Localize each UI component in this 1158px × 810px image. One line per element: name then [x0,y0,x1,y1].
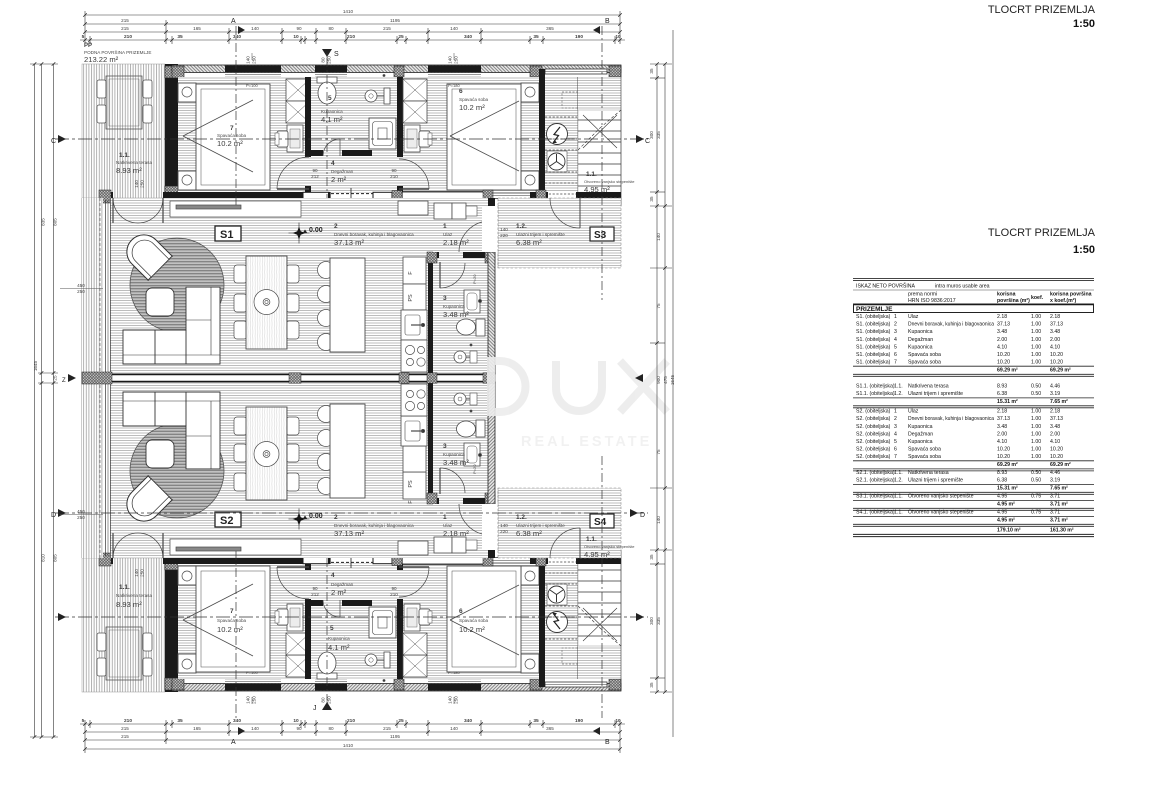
svg-text:10.20: 10.20 [1050,447,1063,453]
svg-text:Kupaonica: Kupaonica [908,439,933,445]
svg-text:S2. (obiteljska): S2. (obiteljska) [856,431,891,437]
svg-text:C: C [645,138,650,145]
svg-text:1.00: 1.00 [1031,416,1041,422]
svg-text:37.13 m²: 37.13 m² [334,238,364,247]
svg-text:140: 140 [134,180,139,188]
svg-text:1.00: 1.00 [1031,439,1041,445]
svg-text:1: 1 [894,314,897,320]
svg-text:1.00: 1.00 [1031,431,1041,437]
svg-text:35: 35 [649,554,654,560]
svg-text:140: 140 [246,696,251,704]
svg-text:površina (m²): površina (m²) [997,298,1030,304]
svg-text:S2. (obiteljska): S2. (obiteljska) [856,454,891,460]
svg-text:3.48: 3.48 [997,424,1007,430]
svg-text:2.18 m²: 2.18 m² [443,238,469,247]
svg-text:365: 365 [546,726,554,731]
svg-text:4.95 m²: 4.95 m² [584,185,610,194]
svg-text:10.20: 10.20 [997,454,1010,460]
svg-text:korisna površina: korisna površina [1050,292,1092,298]
svg-text:0.50: 0.50 [1031,384,1041,390]
svg-text:6.38 m²: 6.38 m² [516,529,542,538]
svg-text:S2. (obiteljska): S2. (obiteljska) [856,424,891,430]
svg-text:5: 5 [894,344,897,350]
svg-text:1.1.: 1.1. [586,536,597,543]
svg-text:TLOCRT PRIZEMLJA: TLOCRT PRIZEMLJA [988,4,1096,16]
svg-text:Spavaća soba: Spavaća soba [459,618,489,623]
svg-text:805: 805 [53,218,58,226]
svg-text:Kupaonica: Kupaonica [328,636,350,641]
svg-text:37.13: 37.13 [1050,416,1063,422]
svg-text:PS: PS [408,480,414,488]
svg-text:S2. (obiteljska): S2. (obiteljska) [856,416,891,422]
svg-text:S3.1. (obiteljska): S3.1. (obiteljska) [856,494,895,500]
svg-text:37.13 m²: 37.13 m² [334,529,364,538]
svg-text:intra muros usable area: intra muros usable area [935,284,990,290]
svg-text:3: 3 [443,443,447,450]
svg-text:Spavaća soba: Spavaća soba [908,454,941,460]
svg-text:x koef.(m²): x koef.(m²) [1050,298,1077,304]
svg-text:Spavaća soba: Spavaća soba [217,133,247,138]
svg-text:2.18: 2.18 [1050,314,1060,320]
svg-text:1.2.: 1.2. [516,514,527,521]
svg-text:4.95 m²: 4.95 m² [584,550,610,559]
svg-text:10.20: 10.20 [1050,454,1063,460]
svg-text:B: B [605,18,610,25]
svg-text:340: 340 [233,718,241,724]
svg-text:4.10: 4.10 [1050,344,1060,350]
svg-text:1.00: 1.00 [1031,352,1041,358]
svg-text:Spavaća soba: Spavaća soba [459,97,489,102]
svg-text:335: 335 [656,617,661,625]
svg-text:1: 1 [443,223,447,230]
svg-text:69.29 m²: 69.29 m² [997,368,1018,374]
svg-text:475: 475 [663,376,668,384]
svg-text:215: 215 [383,726,391,731]
svg-text:450: 450 [77,509,85,514]
svg-text:1.00: 1.00 [1031,344,1041,350]
svg-text:Dnevni boravak, kuhinja i blag: Dnevni boravak, kuhinja i blagovaonica [908,416,994,422]
svg-text:2: 2 [334,514,338,521]
svg-text:2: 2 [894,322,897,328]
svg-text:250: 250 [140,180,145,188]
svg-text:S1. (obiteljska): S1. (obiteljska) [856,322,891,328]
svg-text:S2.1. (obiteljska): S2.1. (obiteljska) [856,470,895,476]
svg-text:S4: S4 [594,517,607,528]
svg-text:835: 835 [41,218,46,226]
svg-text:90: 90 [312,586,318,591]
svg-text:450: 450 [77,283,85,288]
svg-text:Otvoreno vanjsko stepenište: Otvoreno vanjsko stepenište [908,510,974,516]
svg-text:0.50: 0.50 [1031,478,1041,484]
svg-text:8.93 m²: 8.93 m² [116,166,142,175]
svg-text:165: 165 [193,726,201,731]
svg-text:Z: Z [62,378,66,384]
svg-text:80: 80 [321,57,326,63]
svg-text:8.93 m²: 8.93 m² [116,600,142,609]
svg-text:Spavaća soba: Spavaća soba [908,447,941,453]
svg-text:140: 140 [448,696,453,704]
svg-text:10.2 m²: 10.2 m² [217,139,243,148]
svg-text:1: 1 [443,514,447,521]
svg-text:1.00: 1.00 [1031,454,1041,460]
svg-text:S1. (obiteljska): S1. (obiteljska) [856,352,891,358]
svg-text:A: A [231,739,236,746]
svg-text:HRN ISO 9836:2017: HRN ISO 9836:2017 [908,298,956,304]
svg-text:2.18: 2.18 [997,409,1007,415]
svg-text:Natkrivena terasa: Natkrivena terasa [116,160,152,165]
svg-text:140: 140 [500,523,508,528]
svg-text:1.00: 1.00 [1031,337,1041,343]
svg-text:Kupaonica: Kupaonica [443,304,465,309]
svg-text:Ulazni trijem i spremište: Ulazni trijem i spremište [908,391,963,397]
svg-text:80: 80 [328,26,334,31]
svg-text:1195: 1195 [390,18,400,23]
svg-text:2.00: 2.00 [997,337,1007,343]
svg-text:810: 810 [41,554,46,562]
svg-text:75: 75 [656,303,661,309]
svg-text:S1. (obiteljska): S1. (obiteljska) [856,337,891,343]
svg-text:Degažman: Degažman [331,169,354,174]
svg-text:Kupaonica: Kupaonica [443,452,465,457]
svg-text:15.31 m²: 15.31 m² [997,486,1018,492]
svg-text:S2.1. (obiteljska): S2.1. (obiteljska) [856,478,895,484]
svg-text:3.71: 3.71 [1050,510,1060,516]
svg-text:10.20: 10.20 [1050,352,1063,358]
svg-text:90: 90 [391,168,397,173]
svg-text:25: 25 [53,375,58,381]
svg-text:340: 340 [233,34,241,40]
svg-text:1.2.: 1.2. [516,223,527,230]
svg-text:3: 3 [443,295,447,302]
svg-text:4: 4 [894,337,897,343]
svg-text:Ulazni trijem i spremište: Ulazni trijem i spremište [516,232,565,237]
svg-text:S1. (obiteljska): S1. (obiteljska) [856,314,891,320]
svg-text:5: 5 [82,718,85,724]
svg-text:215: 215 [121,26,129,31]
svg-text:6: 6 [894,447,897,453]
svg-text:2.00: 2.00 [997,431,1007,437]
svg-text:212: 212 [311,592,319,597]
svg-text:215: 215 [121,18,129,23]
svg-text:4: 4 [331,160,335,167]
svg-text:212: 212 [311,174,319,179]
svg-text:4.95: 4.95 [997,510,1007,516]
svg-text:10.20: 10.20 [1050,360,1063,366]
svg-text:S3: S3 [594,230,607,241]
svg-text:6: 6 [459,608,463,615]
svg-text:1.00: 1.00 [1031,360,1041,366]
svg-text:25: 25 [398,34,404,40]
svg-text:Spavaća soba: Spavaća soba [908,360,941,366]
svg-text:Kupaonica: Kupaonica [908,329,933,335]
svg-text:3.48 m²: 3.48 m² [443,310,469,319]
svg-text:3.48: 3.48 [1050,424,1060,430]
svg-text:2.18: 2.18 [1050,409,1060,415]
svg-text:S1. (obiteljska): S1. (obiteljska) [856,344,891,350]
svg-text:5: 5 [894,439,897,445]
svg-text:S2. (obiteljska): S2. (obiteljska) [856,447,891,453]
svg-text:4.95 m²: 4.95 m² [997,518,1015,524]
svg-text:2 m²: 2 m² [331,175,347,184]
svg-text:Otvoreno vanjsko stepenište: Otvoreno vanjsko stepenište [584,544,635,549]
svg-text:Ulaz: Ulaz [908,314,919,320]
svg-text:210: 210 [390,174,398,179]
svg-text:Ulazni trijem i spremište: Ulazni trijem i spremište [908,478,963,484]
svg-text:140: 140 [251,726,259,731]
svg-text:Spavaća soba: Spavaća soba [908,352,941,358]
svg-text:0.75: 0.75 [1031,510,1041,516]
svg-text:1410: 1410 [343,743,354,748]
svg-text:1.2.: 1.2. [894,478,903,484]
svg-text:140: 140 [656,516,661,524]
svg-text:365: 365 [546,26,554,31]
svg-text:Ulaz: Ulaz [443,232,453,237]
svg-text:1.2.: 1.2. [894,391,903,397]
svg-text:140: 140 [246,56,251,64]
svg-text:1.1.: 1.1. [894,510,903,516]
svg-text:7: 7 [230,125,234,132]
svg-text:210: 210 [124,34,132,40]
svg-text:1.1.: 1.1. [894,470,903,476]
svg-text:5: 5 [82,34,85,40]
svg-text:10: 10 [293,34,299,40]
svg-text:Dnevni boravak, kuhinja i blag: Dnevni boravak, kuhinja i blagovaonica [334,523,414,528]
svg-text:3.71 m²: 3.71 m² [1050,518,1068,524]
svg-text:1.00: 1.00 [1031,447,1041,453]
svg-text:215: 215 [383,26,391,31]
svg-text:215: 215 [121,734,129,739]
svg-text:8.93: 8.93 [997,384,1007,390]
svg-text:S: S [334,51,339,58]
svg-text:7: 7 [230,608,234,615]
svg-text:REAL ESTATE: REAL ESTATE [521,434,652,450]
svg-text:S1: S1 [220,229,233,241]
svg-text:90: 90 [296,726,302,731]
svg-text:2.00: 2.00 [1050,337,1060,343]
svg-text:S1.1. (obiteljska): S1.1. (obiteljska) [856,384,895,390]
svg-text:10.20: 10.20 [997,447,1010,453]
svg-text:3.48: 3.48 [1050,329,1060,335]
svg-text:210: 210 [124,718,132,724]
svg-text:69.29 m²: 69.29 m² [997,462,1018,468]
svg-text:250: 250 [77,289,85,294]
svg-text:Ulaz: Ulaz [908,409,919,415]
svg-text:1195: 1195 [390,734,400,739]
svg-text:35: 35 [177,718,183,724]
svg-text:90: 90 [296,26,302,31]
svg-text:S2. (obiteljska): S2. (obiteljska) [856,439,891,445]
svg-text:5: 5 [330,625,334,632]
svg-text:2: 2 [334,223,338,230]
svg-text:140: 140 [251,26,259,31]
svg-text:1.1.: 1.1. [894,494,903,500]
svg-text:P=20: P=20 [472,464,477,474]
svg-text:Kupaonica: Kupaonica [908,424,933,430]
svg-text:Ulazni trijem i spremište: Ulazni trijem i spremište [516,523,565,528]
svg-text:3.19: 3.19 [1050,478,1060,484]
svg-text:1.00: 1.00 [1031,329,1041,335]
svg-text:3: 3 [894,329,897,335]
svg-text:1.1.: 1.1. [119,152,130,159]
svg-text:2.18: 2.18 [997,314,1007,320]
svg-text:0.00: 0.00 [309,513,323,520]
svg-text:2.00: 2.00 [1050,431,1060,437]
svg-text:1.00: 1.00 [1031,322,1041,328]
svg-text:210: 210 [390,592,398,597]
svg-text:10: 10 [293,718,299,724]
svg-text:4: 4 [331,572,335,579]
svg-text:2.18 m²: 2.18 m² [443,529,469,538]
svg-text:250: 250 [140,569,145,577]
svg-text:140: 140 [450,726,458,731]
svg-text:10.2 m²: 10.2 m² [217,625,243,634]
svg-text:1.00: 1.00 [1031,409,1041,415]
svg-text:35: 35 [533,718,539,724]
svg-text:D: D [51,512,56,519]
svg-text:90: 90 [391,586,397,591]
svg-text:6.38: 6.38 [997,391,1007,397]
svg-text:25: 25 [398,718,404,724]
svg-text:4.46: 4.46 [1050,384,1060,390]
svg-text:1645: 1645 [670,374,675,385]
svg-text:Otvoreno vanjsko stepenište: Otvoreno vanjsko stepenište [908,494,974,500]
svg-text:Natkrivena terasa: Natkrivena terasa [908,384,949,390]
svg-text:S4.1. (obiteljska): S4.1. (obiteljska) [856,510,895,516]
svg-text:7.65 m²: 7.65 m² [1050,399,1068,405]
svg-text:6: 6 [894,352,897,358]
svg-text:1: 1 [894,409,897,415]
svg-text:1.1.: 1.1. [119,584,130,591]
svg-text:2: 2 [894,416,897,422]
svg-text:340: 340 [464,718,472,724]
svg-text:4.1 m²: 4.1 m² [328,643,350,652]
svg-text:3.48 m²: 3.48 m² [443,458,469,467]
svg-text:Dnevni boravak, kuhinja i blag: Dnevni boravak, kuhinja i blagovaonica [334,232,414,237]
svg-text:6.38: 6.38 [997,478,1007,484]
svg-text:37.13: 37.13 [997,416,1010,422]
svg-text:250: 250 [77,515,85,520]
svg-text:S2: S2 [220,515,233,527]
svg-text:6: 6 [459,88,463,95]
svg-text:S1. (obiteljska): S1. (obiteljska) [856,329,891,335]
svg-text:210: 210 [347,34,355,40]
svg-text:15.31 m²: 15.31 m² [997,399,1018,405]
svg-text:220: 220 [500,529,508,534]
svg-text:140: 140 [448,56,453,64]
svg-text:S1.1. (obiteljska): S1.1. (obiteljska) [856,391,895,397]
svg-text:1.1.: 1.1. [894,384,903,390]
svg-text:7: 7 [894,360,897,366]
svg-text:0.50: 0.50 [1031,470,1041,476]
svg-text:Otvoreno vanjsko stepenište: Otvoreno vanjsko stepenište [584,179,635,184]
svg-text:10.2 m²: 10.2 m² [459,103,485,112]
svg-text:D: D [640,512,645,519]
svg-text:0.75: 0.75 [1031,494,1041,500]
svg-text:900: 900 [656,376,661,384]
svg-text:3.19: 3.19 [1050,391,1060,397]
svg-text:0.00: 0.00 [309,227,323,234]
svg-text:Natkrivena terasa: Natkrivena terasa [116,593,152,598]
svg-text:3.48: 3.48 [997,329,1007,335]
svg-text:1645: 1645 [33,360,38,371]
svg-text:P=100: P=100 [246,83,258,88]
svg-text:210: 210 [347,718,355,724]
svg-text:10.2 m²: 10.2 m² [459,625,485,634]
svg-text:1.00: 1.00 [1031,314,1041,320]
svg-text:1410: 1410 [343,9,354,14]
svg-text:Natkrivena terasa: Natkrivena terasa [908,470,949,476]
svg-text:4.46: 4.46 [1050,470,1060,476]
svg-text:P=180: P=180 [448,83,460,88]
svg-text:6.38 m²: 6.38 m² [516,238,542,247]
svg-text:4.10: 4.10 [1050,439,1060,445]
svg-text:335: 335 [656,131,661,139]
svg-text:300: 300 [649,617,654,625]
svg-text:Degažman: Degažman [908,337,933,343]
svg-text:140: 140 [656,233,661,241]
svg-text:340: 340 [464,34,472,40]
svg-text:3: 3 [894,424,897,430]
svg-text:Spavaća soba: Spavaća soba [217,618,247,623]
svg-text:Degažman: Degažman [908,431,933,437]
svg-text:3.71 m²: 3.71 m² [1050,502,1068,508]
svg-text:ISKAZ NETO POVRŠINA: ISKAZ NETO POVRŠINA [856,283,916,290]
svg-text:1.1.: 1.1. [586,171,597,178]
svg-text:P=100: P=100 [246,670,258,675]
svg-text:Kupaonica: Kupaonica [321,109,343,114]
svg-text:69.29 m²: 69.29 m² [1050,368,1071,374]
svg-text:220: 220 [500,233,508,238]
svg-text:10.20: 10.20 [997,352,1010,358]
svg-text:69.29 m²: 69.29 m² [1050,462,1071,468]
svg-text:PS: PS [408,294,414,302]
svg-text:1:50: 1:50 [1073,244,1095,256]
svg-text:P=180: P=180 [448,670,460,675]
svg-text:Ulaz: Ulaz [443,523,453,528]
svg-text:7: 7 [894,454,897,460]
svg-text:215: 215 [121,726,129,731]
svg-text:1.00: 1.00 [1031,424,1041,430]
svg-text:80: 80 [328,726,334,731]
svg-text:C: C [51,138,56,145]
svg-text:5: 5 [328,95,332,102]
svg-text:koef.: koef. [1031,295,1044,301]
svg-text:A: A [231,18,236,25]
svg-text:80: 80 [321,697,326,703]
svg-text:10.20: 10.20 [997,360,1010,366]
svg-text:75: 75 [656,449,661,455]
svg-text:TLOCRT PRIZEMLJA: TLOCRT PRIZEMLJA [988,227,1096,239]
svg-text:35: 35 [177,34,183,40]
svg-text:S2. (obiteljska): S2. (obiteljska) [856,409,891,415]
svg-text:4.95: 4.95 [997,494,1007,500]
svg-text:4.10: 4.10 [997,439,1007,445]
svg-text:37.13: 37.13 [1050,322,1063,328]
svg-text:4.10: 4.10 [997,344,1007,350]
svg-text:140: 140 [134,569,139,577]
svg-text:190: 190 [575,34,583,40]
svg-text:35: 35 [649,682,654,688]
svg-text:P=20: P=20 [472,274,477,284]
svg-text:805: 805 [53,554,58,562]
svg-text:1:50: 1:50 [1073,18,1095,30]
svg-text:161.30 m²: 161.30 m² [1050,527,1074,533]
svg-text:PRIZEMLJE: PRIZEMLJE [856,306,893,313]
svg-text:140: 140 [450,26,458,31]
svg-text:190: 190 [575,718,583,724]
svg-text:165: 165 [193,26,201,31]
svg-text:35: 35 [649,68,654,74]
